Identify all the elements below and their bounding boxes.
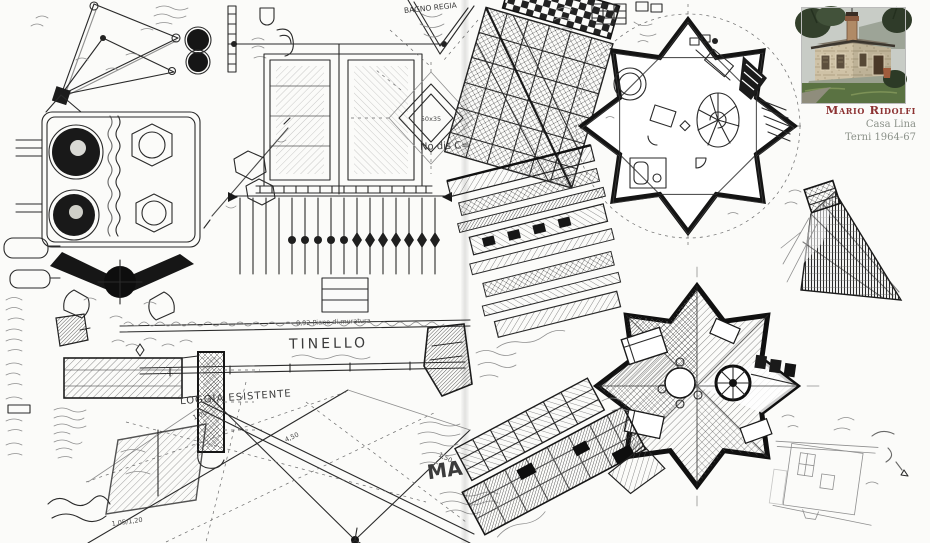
- triangulation-plan-sketch: 4,50 1,00 1,05/1,20 1,50: [46, 382, 474, 543]
- project-dates: Terni 1964-67: [700, 132, 916, 143]
- book-spread: 50x35 BAGNO REGIA No dis C= 0,92 Piano d…: [0, 0, 930, 543]
- project-name: Casa Lina: [700, 119, 916, 130]
- photo-caption: Mario Ridolfi Casa Lina Terni 1964-67: [700, 103, 916, 143]
- dark-block-row: [752, 352, 804, 392]
- spiral-stair-lower: [716, 366, 750, 400]
- signature-scribble: [48, 496, 110, 522]
- architect-name: Mario Ridolfi: [700, 103, 916, 117]
- railing-balusters: [240, 198, 435, 274]
- tinello-label: TINELLO: [289, 335, 368, 352]
- diamond-size-label: 50x35: [421, 115, 441, 123]
- margin-scribbles-left: [0, 325, 55, 475]
- inter-plan-scribbles: [470, 345, 550, 395]
- ma-label: MA: [426, 456, 464, 485]
- railing-ornaments: [288, 232, 440, 248]
- tinello-underline: [290, 353, 372, 361]
- faint-house-sketch: [776, 418, 930, 543]
- casa-lina-photo: [801, 7, 906, 104]
- dim-105-label: 1,05/1,20: [111, 516, 143, 528]
- dim-450-label: 4,50: [284, 431, 300, 444]
- aerial-house-sketch: [462, 393, 652, 543]
